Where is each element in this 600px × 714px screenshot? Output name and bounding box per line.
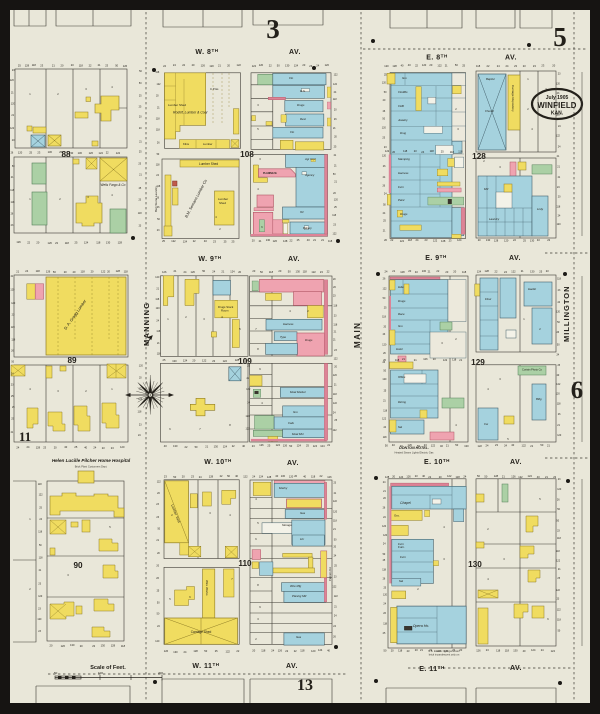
- svg-text:130: 130: [530, 270, 535, 274]
- svg-text:122: 122: [518, 475, 523, 479]
- svg-text:130: 130: [69, 151, 74, 155]
- svg-text:120: 120: [384, 64, 389, 68]
- svg-text:brick incandescent only on: brick incandescent only on: [429, 653, 460, 657]
- svg-text:122: 122: [382, 417, 387, 420]
- svg-text:3: 3: [266, 14, 280, 44]
- svg-text:C.P.&s: C.P.&s: [210, 87, 219, 91]
- svg-text:6: 6: [571, 377, 584, 404]
- svg-text:118: 118: [156, 164, 160, 167]
- svg-text:Brick Plant Customers Dept.: Brick Plant Customers Dept.: [75, 465, 108, 469]
- svg-text:124: 124: [230, 270, 235, 274]
- svg-text:122: 122: [522, 444, 527, 448]
- svg-text:130: 130: [106, 241, 111, 245]
- svg-text:130: 130: [173, 444, 178, 448]
- svg-text:Cafe: Cafe: [288, 421, 294, 425]
- svg-text:124: 124: [318, 648, 323, 652]
- svg-text:Drug: Drug: [400, 131, 407, 135]
- svg-text:120: 120: [18, 150, 23, 154]
- svg-text:122: 122: [10, 127, 15, 130]
- svg-text:126: 126: [16, 240, 21, 244]
- svg-text:130: 130: [78, 151, 83, 155]
- svg-text:126: 126: [201, 63, 206, 67]
- svg-text:120: 120: [383, 534, 388, 537]
- svg-text:120: 120: [557, 488, 562, 491]
- svg-text:128: 128: [118, 240, 123, 244]
- svg-text:129: 129: [471, 358, 485, 367]
- svg-text:Dining: Dining: [398, 400, 406, 404]
- svg-text:118: 118: [156, 128, 160, 131]
- svg-text:Rodolf, Lumber & Coal: Rodolf, Lumber & Coal: [173, 111, 208, 115]
- svg-text:Curtain Photo Co: Curtain Photo Co: [522, 368, 542, 372]
- svg-text:128: 128: [25, 63, 30, 67]
- svg-text:128: 128: [193, 649, 198, 653]
- svg-text:122: 122: [157, 83, 162, 86]
- svg-text:130: 130: [530, 238, 535, 242]
- svg-text:118: 118: [269, 270, 274, 274]
- svg-text:Gro: Gro: [398, 324, 403, 328]
- svg-text:Jewelry: Jewelry: [398, 118, 408, 122]
- svg-text:Baptist: Baptist: [486, 77, 495, 81]
- svg-text:122: 122: [433, 238, 438, 242]
- svg-text:90: 90: [73, 561, 83, 570]
- svg-text:128: 128: [485, 269, 490, 273]
- svg-text:Heated Steam Lights Electr: Heated Steam Lights Electric Gas: [395, 451, 435, 455]
- svg-text:118: 118: [395, 358, 400, 362]
- svg-text:200: 200: [158, 671, 163, 675]
- svg-text:120: 120: [37, 618, 42, 621]
- svg-text:120: 120: [382, 378, 387, 381]
- svg-text:122: 122: [443, 358, 448, 362]
- svg-text:Meat Market: Meat Market: [290, 390, 306, 394]
- svg-text:Carriage Shed: Carriage Shed: [191, 630, 212, 634]
- svg-text:122: 122: [246, 388, 251, 391]
- svg-text:118: 118: [557, 402, 561, 405]
- svg-text:Sal: Sal: [398, 425, 402, 429]
- svg-text:122: 122: [202, 359, 207, 363]
- svg-text:Furn: Furn: [398, 185, 404, 189]
- svg-text:118: 118: [333, 305, 337, 308]
- svg-text:122: 122: [334, 358, 339, 361]
- svg-text:122: 122: [311, 270, 316, 274]
- svg-text:122: 122: [116, 151, 121, 155]
- svg-text:124: 124: [551, 649, 556, 653]
- svg-text:Oil: Oil: [300, 210, 304, 214]
- svg-text:120: 120: [504, 238, 509, 242]
- svg-text:120: 120: [156, 307, 161, 310]
- svg-text:122: 122: [556, 383, 561, 386]
- svg-text:13: 13: [297, 677, 313, 694]
- svg-text:89: 89: [67, 356, 77, 365]
- svg-text:Gas: Gas: [296, 635, 302, 639]
- svg-text:124: 124: [259, 474, 264, 478]
- svg-text:122: 122: [447, 474, 452, 478]
- svg-text:Bakery: Bakery: [303, 226, 312, 230]
- svg-text:Lndy: Lndy: [537, 207, 544, 211]
- svg-text:Room: Room: [221, 309, 229, 313]
- svg-text:118: 118: [430, 149, 435, 153]
- svg-text:AV.: AV.: [510, 459, 522, 466]
- svg-text:Lumber Shed: Lumber Shed: [199, 162, 218, 166]
- svg-text:118: 118: [383, 409, 387, 412]
- svg-text:130: 130: [70, 643, 75, 647]
- svg-text:124: 124: [183, 358, 188, 362]
- svg-text:118: 118: [557, 278, 561, 281]
- svg-text:118: 118: [383, 436, 387, 439]
- svg-text:122: 122: [383, 288, 388, 291]
- svg-text:130: 130: [281, 474, 286, 478]
- svg-text:126: 126: [123, 64, 128, 68]
- svg-text:Chapel: Chapel: [400, 501, 411, 505]
- svg-text:118: 118: [261, 649, 266, 653]
- svg-text:AV.: AV.: [509, 255, 521, 262]
- svg-text:Hardin: Hardin: [528, 287, 537, 291]
- svg-text:AV.: AV.: [289, 49, 301, 56]
- svg-text:118: 118: [398, 649, 403, 653]
- svg-text:118: 118: [456, 475, 461, 479]
- svg-text:118: 118: [39, 556, 43, 559]
- svg-text:122: 122: [243, 475, 248, 479]
- svg-text:120: 120: [325, 63, 330, 67]
- svg-text:Office: Office: [398, 375, 406, 379]
- svg-text:118: 118: [137, 410, 141, 413]
- svg-text:118: 118: [156, 330, 160, 333]
- svg-text:124: 124: [477, 270, 482, 274]
- svg-text:122: 122: [556, 134, 561, 137]
- svg-text:118: 118: [333, 519, 337, 522]
- svg-text:130: 130: [214, 445, 219, 449]
- svg-text:MILLINGTON: MILLINGTON: [562, 285, 571, 342]
- svg-text:Gro: Gro: [293, 410, 298, 414]
- svg-text:118: 118: [557, 619, 561, 622]
- svg-text:118: 118: [333, 323, 337, 326]
- svg-text:118: 118: [65, 241, 70, 245]
- svg-text:122: 122: [437, 649, 442, 653]
- svg-text:Helen Lucille Pilcher Home Hos: Helen Lucille Pilcher Home Hospital: [52, 458, 131, 463]
- svg-text:118: 118: [79, 63, 84, 67]
- svg-text:Hdw: Hdw: [398, 285, 405, 289]
- svg-text:122: 122: [157, 480, 162, 483]
- svg-text:124: 124: [223, 444, 228, 448]
- svg-text:118: 118: [311, 474, 316, 478]
- svg-text:120: 120: [382, 82, 387, 85]
- svg-text:126: 126: [191, 270, 196, 274]
- svg-text:126: 126: [511, 475, 516, 479]
- svg-text:Agr Impl: Agr Impl: [304, 157, 316, 161]
- svg-text:122: 122: [333, 402, 338, 405]
- svg-text:120: 120: [155, 276, 160, 279]
- svg-text:120: 120: [289, 475, 294, 479]
- svg-text:118: 118: [156, 185, 160, 188]
- svg-text:Furn: Furn: [400, 555, 406, 559]
- svg-text:120: 120: [556, 393, 561, 396]
- svg-text:122: 122: [333, 500, 338, 503]
- svg-text:128: 128: [36, 446, 41, 450]
- svg-text:Drugs: Drugs: [297, 103, 305, 107]
- svg-text:126: 126: [406, 475, 411, 479]
- svg-text:122: 122: [333, 232, 338, 235]
- svg-text:122: 122: [385, 149, 390, 153]
- svg-text:Mill: Mill: [484, 187, 489, 191]
- svg-text:130: 130: [172, 359, 177, 363]
- svg-text:118: 118: [452, 358, 457, 362]
- svg-text:118: 118: [155, 71, 159, 74]
- svg-text:Storage: Storage: [282, 523, 292, 527]
- svg-text:120: 120: [382, 343, 387, 346]
- svg-text:118: 118: [303, 269, 308, 273]
- svg-text:Wells Fargo & Co: Wells Fargo & Co: [101, 183, 126, 187]
- svg-text:118: 118: [156, 118, 160, 121]
- svg-text:130: 130: [486, 238, 491, 242]
- svg-text:122: 122: [333, 98, 338, 101]
- svg-text:Shed: Shed: [219, 201, 226, 205]
- svg-text:120: 120: [557, 434, 562, 437]
- svg-text:130: 130: [285, 63, 290, 67]
- svg-text:118: 118: [458, 150, 463, 154]
- svg-text:120: 120: [382, 155, 387, 158]
- svg-text:118: 118: [556, 550, 560, 553]
- svg-text:Rest: Rest: [300, 117, 306, 121]
- svg-text:120: 120: [11, 302, 16, 305]
- svg-text:126: 126: [283, 443, 288, 447]
- svg-text:120: 120: [139, 365, 144, 368]
- svg-text:Paint: Paint: [398, 198, 405, 202]
- svg-text:122: 122: [478, 444, 483, 448]
- svg-text:Wire Mfg: Wire Mfg: [290, 584, 302, 588]
- svg-text:120: 120: [444, 649, 449, 653]
- svg-text:118: 118: [476, 64, 481, 68]
- svg-text:126: 126: [273, 239, 278, 243]
- svg-text:118: 118: [505, 648, 510, 652]
- svg-text:122: 122: [332, 585, 337, 588]
- svg-text:Palmers Rd.: Palmers Rd.: [328, 566, 332, 581]
- svg-text:118: 118: [81, 270, 86, 274]
- svg-text:Laundry: Laundry: [489, 217, 500, 221]
- svg-text:118: 118: [332, 214, 336, 217]
- svg-text:118: 118: [382, 315, 386, 318]
- svg-text:126: 126: [48, 241, 53, 245]
- svg-text:120: 120: [382, 525, 387, 528]
- svg-text:AV.: AV.: [287, 460, 299, 467]
- svg-text:126: 126: [476, 649, 481, 653]
- svg-text:120: 120: [11, 103, 16, 106]
- svg-text:Type: Type: [280, 335, 286, 339]
- svg-text:122: 122: [226, 650, 231, 654]
- svg-text:130: 130: [513, 649, 518, 653]
- svg-text:120: 120: [334, 199, 339, 202]
- svg-text:124: 124: [457, 238, 462, 242]
- svg-text:118: 118: [383, 622, 387, 625]
- svg-text:118: 118: [556, 205, 560, 208]
- svg-text:124: 124: [297, 444, 302, 448]
- svg-text:130: 130: [48, 150, 53, 154]
- svg-text:124: 124: [313, 444, 318, 448]
- svg-text:118: 118: [155, 298, 159, 301]
- svg-text:Lumber Shed: Lumber Shed: [168, 103, 186, 107]
- svg-text:124: 124: [320, 444, 325, 448]
- svg-text:50: 50: [54, 671, 58, 675]
- svg-text:128: 128: [267, 475, 272, 479]
- svg-text:120: 120: [11, 326, 16, 329]
- svg-text:122: 122: [511, 270, 516, 274]
- svg-text:118: 118: [36, 269, 41, 273]
- svg-text:130: 130: [266, 238, 271, 242]
- svg-text:128: 128: [400, 270, 405, 274]
- svg-text:130: 130: [101, 644, 106, 648]
- svg-text:Church: Church: [485, 109, 494, 113]
- svg-text:118: 118: [124, 270, 129, 274]
- svg-text:120: 120: [556, 82, 561, 85]
- svg-text:118: 118: [300, 649, 305, 653]
- svg-text:128: 128: [494, 474, 499, 478]
- svg-text:130: 130: [464, 444, 469, 448]
- svg-text:124: 124: [294, 63, 299, 67]
- svg-text:118: 118: [10, 201, 14, 204]
- svg-text:118: 118: [157, 352, 161, 355]
- svg-text:124: 124: [276, 443, 281, 447]
- svg-text:124: 124: [531, 648, 536, 652]
- svg-text:122: 122: [333, 83, 338, 86]
- svg-text:128: 128: [111, 644, 116, 648]
- svg-text:126: 126: [278, 648, 283, 652]
- svg-text:122: 122: [556, 589, 561, 592]
- svg-text:120: 120: [333, 374, 338, 377]
- svg-text:128: 128: [441, 239, 446, 243]
- svg-text:Meat Mkt: Meat Mkt: [292, 432, 304, 436]
- svg-text:122: 122: [333, 429, 338, 432]
- svg-text:Machy: Machy: [279, 486, 288, 490]
- svg-text:AV.: AV.: [510, 665, 522, 672]
- svg-text:122: 122: [246, 428, 251, 431]
- svg-text:124: 124: [183, 239, 188, 243]
- svg-text:AV.: AV.: [286, 663, 298, 670]
- svg-text:126: 126: [89, 151, 94, 155]
- svg-text:Hotel: Hotel: [396, 347, 403, 351]
- svg-text:126: 126: [46, 269, 51, 273]
- svg-text:118: 118: [138, 212, 142, 215]
- svg-text:130: 130: [468, 560, 482, 569]
- svg-text:AV.: AV.: [505, 55, 517, 62]
- svg-text:122: 122: [139, 387, 144, 390]
- svg-text:Gas: Gas: [300, 511, 306, 515]
- svg-text:122: 122: [334, 74, 339, 77]
- svg-text:118: 118: [462, 270, 467, 274]
- svg-text:Bttlg: Bttlg: [536, 397, 542, 401]
- svg-text:120: 120: [382, 127, 387, 130]
- svg-text:122: 122: [334, 595, 339, 598]
- svg-text:AV.: AV.: [288, 256, 300, 263]
- svg-text:120: 120: [311, 649, 316, 653]
- svg-text:Wire Works: Wire Works: [205, 580, 209, 596]
- svg-text:120: 120: [10, 289, 15, 292]
- svg-text:Agency: Agency: [304, 173, 315, 177]
- svg-text:118: 118: [557, 537, 561, 540]
- svg-text:D.G.: D.G.: [300, 89, 306, 93]
- svg-text:122: 122: [557, 608, 562, 611]
- svg-text:Clo: Clo: [290, 130, 295, 134]
- svg-text:128: 128: [283, 239, 288, 243]
- svg-text:118: 118: [328, 239, 333, 243]
- svg-text:122: 122: [39, 494, 44, 497]
- svg-text:122: 122: [252, 64, 257, 68]
- svg-text:120: 120: [557, 223, 562, 226]
- svg-text:Drugs: Drugs: [398, 299, 406, 303]
- svg-text:120: 120: [383, 594, 388, 597]
- svg-text:Harness: Harness: [283, 322, 294, 326]
- svg-text:Harness: Harness: [398, 171, 409, 175]
- svg-text:126: 126: [164, 649, 169, 653]
- svg-text:122: 122: [431, 444, 436, 448]
- svg-text:118: 118: [10, 189, 14, 192]
- svg-text:Scale of Feet.: Scale of Feet.: [90, 665, 126, 671]
- svg-text:118: 118: [333, 393, 337, 396]
- svg-text:118: 118: [11, 338, 15, 341]
- svg-text:Furn: Furn: [398, 542, 404, 546]
- svg-text:126: 126: [162, 270, 167, 274]
- svg-text:126: 126: [408, 443, 413, 447]
- svg-text:118: 118: [403, 149, 408, 153]
- svg-text:122: 122: [101, 270, 106, 274]
- svg-text:120: 120: [556, 311, 561, 314]
- svg-text:Gro: Gro: [402, 76, 407, 80]
- svg-text:120: 120: [246, 415, 251, 418]
- svg-text:5: 5: [553, 22, 567, 52]
- svg-text:Sal: Sal: [399, 579, 403, 583]
- svg-text:124: 124: [84, 241, 89, 245]
- svg-text:120: 120: [120, 445, 125, 449]
- svg-text:118: 118: [121, 644, 126, 648]
- svg-text:118: 118: [38, 530, 42, 533]
- svg-text:128: 128: [494, 239, 499, 243]
- svg-text:122: 122: [223, 359, 228, 363]
- svg-text:Planing Mill: Planing Mill: [292, 594, 307, 598]
- svg-text:130: 130: [173, 650, 178, 654]
- svg-text:120: 120: [333, 510, 338, 513]
- svg-text:126: 126: [423, 357, 428, 361]
- svg-text:Flour: Flour: [485, 297, 492, 301]
- svg-text:118: 118: [32, 63, 37, 67]
- svg-text:126: 126: [244, 359, 249, 363]
- svg-text:C&B: C&B: [398, 104, 404, 108]
- svg-text:118: 118: [382, 569, 386, 572]
- svg-text:Opera Ho.: Opera Ho.: [413, 624, 430, 628]
- svg-text:Lumber: Lumber: [203, 142, 213, 146]
- svg-text:Drugs: Drugs: [305, 338, 313, 342]
- svg-text:MAIN: MAIN: [353, 322, 362, 348]
- svg-text:122: 122: [437, 63, 442, 67]
- svg-text:Race: Race: [398, 312, 405, 316]
- svg-text:124: 124: [399, 475, 404, 479]
- svg-text:122: 122: [556, 560, 561, 563]
- svg-text:118: 118: [556, 114, 560, 117]
- svg-text:118: 118: [408, 238, 413, 242]
- svg-text:120: 120: [259, 63, 264, 67]
- svg-text:Clo&Bo: Clo&Bo: [398, 90, 408, 94]
- svg-text:120: 120: [422, 63, 427, 67]
- svg-text:Carriage Repository: Carriage Repository: [511, 85, 515, 112]
- svg-text:Drugs: Drugs: [400, 212, 408, 216]
- svg-text:124: 124: [528, 474, 533, 478]
- svg-text:Gro.: Gro.: [394, 514, 400, 518]
- svg-text:118: 118: [38, 483, 42, 486]
- svg-text:120: 120: [10, 79, 15, 82]
- svg-text:130: 130: [296, 270, 301, 274]
- svg-text:128: 128: [116, 269, 121, 273]
- svg-text:100: 100: [98, 671, 103, 675]
- svg-text:120: 120: [38, 595, 43, 598]
- svg-text:130: 130: [422, 269, 427, 273]
- svg-text:120: 120: [138, 398, 143, 401]
- svg-text:Clo: Clo: [289, 76, 294, 80]
